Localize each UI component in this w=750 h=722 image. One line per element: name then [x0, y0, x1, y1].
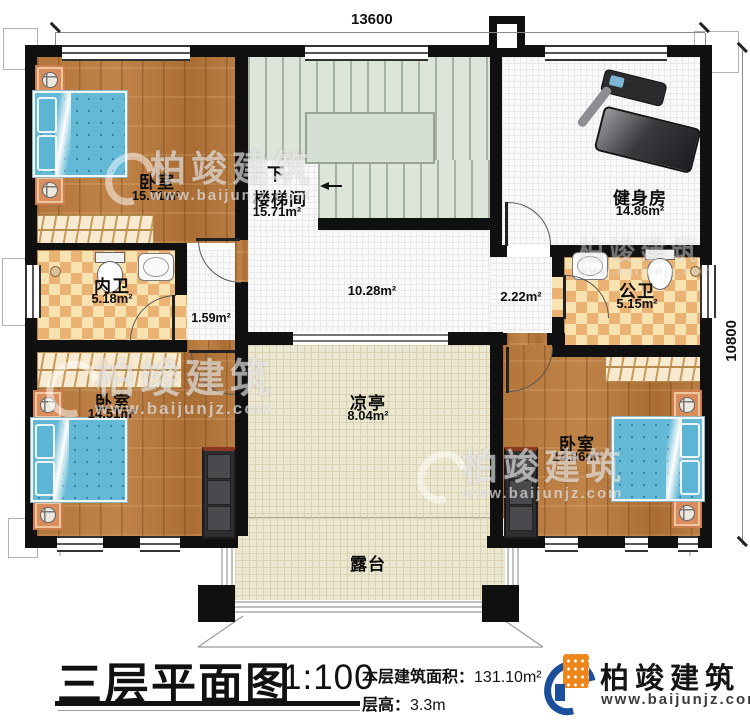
terrace-column-right [482, 585, 519, 622]
dimension-ext-left [55, 33, 56, 45]
sofa-br [504, 447, 538, 539]
sink-basin [143, 257, 169, 277]
nightstand [33, 500, 63, 530]
door-leaf-bedroom-tl [196, 238, 240, 241]
nightstand [35, 175, 65, 205]
floor-area-row: 本层建筑面积：131.10m² [362, 663, 542, 687]
lamp-icon [40, 507, 56, 523]
wall-pavilion-right [490, 345, 503, 536]
title-underline-thick [55, 701, 360, 706]
wall-gym-left [490, 57, 502, 257]
door-gap-bathin [175, 295, 187, 340]
sofa-cushion [207, 454, 231, 479]
lamp-icon [679, 505, 695, 521]
floor-height-value: 3.3m [410, 697, 446, 714]
room-area-bedroom-tl: 15.71m² [132, 188, 180, 203]
window-bottom-bl-2 [140, 536, 180, 552]
sink-basin [577, 256, 603, 276]
sink [138, 253, 174, 281]
door-gap-br [507, 333, 547, 345]
wall-bathin-bottom [25, 340, 187, 352]
wall-stair-bottom [318, 218, 490, 230]
pavilion-floor [248, 345, 490, 518]
bed-br [612, 417, 704, 501]
pillow [35, 461, 55, 496]
brand-logo-icon [545, 652, 595, 710]
wall-bathin-top [25, 243, 187, 250]
door-leaf-bedroom-bl [189, 350, 235, 353]
room-area-bedroom-bl: 14.51m² [88, 406, 136, 421]
room-area-pavilion: 8.04m² [347, 408, 388, 423]
room-area-bath-inner: 5.18m² [91, 291, 132, 306]
bed-tl [33, 91, 127, 177]
window-bottom-br-2 [625, 536, 648, 552]
stair-flight-lower [318, 160, 490, 218]
wall-center-vertical [235, 282, 248, 536]
pillow [680, 460, 700, 495]
pillow [37, 135, 57, 171]
wall-bedroomtl-stair [235, 57, 248, 240]
nightstand [672, 390, 702, 420]
pillow [35, 424, 55, 459]
nightstand [33, 390, 63, 420]
wall-bathin-right [175, 250, 187, 295]
sheet-fold [666, 419, 682, 499]
lamp-icon [679, 397, 695, 413]
wall-bathpub-left-a [552, 257, 564, 277]
stair-direction-label: 下 [267, 160, 285, 185]
lamp-icon [42, 72, 58, 88]
bedroom-tl-wardrobe [37, 215, 154, 245]
dimension-right-line [742, 50, 743, 545]
dimension-right: 10800 [723, 320, 740, 362]
title-underline-thin [58, 710, 360, 711]
door-leaf-bedroom-br [506, 347, 509, 393]
wall-gym-bottom-stub [490, 245, 507, 257]
corridor-right-area: 2.22m² [500, 289, 541, 304]
window-top-bedroomtl [62, 45, 190, 61]
floor-area-value: 131.10m² [474, 669, 542, 686]
wall-pavilion-top-left [235, 332, 293, 345]
wall-pavilion-top-right [448, 332, 503, 345]
corridor-left-area: 1.59m² [191, 311, 231, 325]
room-area-bedroom-br: 14.86m² [553, 449, 601, 464]
floor-plan-canvas: 卧室 15.71m² 下 楼梯间 15.71m² 健身房 14.86m² 内卫 … [0, 0, 750, 722]
sheet-fold [53, 420, 69, 500]
stair-arrow-tail [327, 185, 342, 187]
sofa-cushion [207, 480, 231, 505]
sofa-cushion [207, 506, 231, 531]
shower-head-icon [690, 266, 701, 277]
brand-logo-url: www.baijunjz.com [601, 691, 750, 708]
floor-height-label: 层高： [362, 697, 410, 714]
window-top-gym [545, 45, 667, 61]
shower-head-icon [50, 266, 61, 277]
wall-bedroombr-top-b [547, 333, 565, 345]
room-area-gym: 14.86m² [616, 203, 664, 218]
dimension-top: 13600 [351, 11, 393, 28]
door-leaf-bath-public [563, 275, 566, 319]
door-leaf-bath-inner [172, 295, 175, 340]
sofa-cushion [509, 506, 533, 531]
dimension-ext-right [705, 33, 706, 45]
window-bottom-br-3 [678, 536, 698, 552]
chimney [489, 16, 525, 56]
pavilion-terrace-divider [248, 517, 490, 518]
pavilion-sill-line1 [293, 334, 448, 336]
door-leaf-gym [505, 202, 508, 246]
stair-landing [305, 112, 435, 164]
window-bottom-bl-1 [57, 536, 103, 552]
floor-area-label: 本层建筑面积： [362, 669, 474, 686]
window-right-bathpublic [700, 265, 716, 318]
pavilion-sill-line2 [293, 340, 448, 342]
treadmill-belt [594, 105, 702, 174]
floor-height-row: 层高：3.3m [362, 691, 446, 715]
sofa-bl [202, 447, 236, 539]
window-bottom-br-1 [545, 536, 578, 552]
sofa-cushion [509, 480, 533, 505]
nightstand [672, 498, 702, 528]
lamp-icon [40, 397, 56, 413]
lamp-icon [42, 182, 58, 198]
hall-area: 10.28m² [348, 283, 396, 298]
pillow [37, 97, 57, 133]
bed-bl [31, 418, 127, 502]
room-label-terrace: 露台 [350, 550, 386, 575]
window-left-bathinner [25, 265, 41, 318]
pillow [680, 423, 700, 458]
window-top-stairwell [305, 45, 428, 61]
wall-bathpub-bottom [552, 345, 712, 357]
room-area-stairwell: 15.71m² [253, 204, 301, 219]
bedroom-bl-wardrobe [37, 352, 182, 388]
dimension-top-line [55, 32, 705, 33]
hall-floor [248, 230, 490, 332]
plan-scale: 1:100 [282, 658, 375, 698]
sheet-fold [55, 93, 71, 175]
terrace-column-left [198, 585, 235, 622]
room-area-bath-public: 5.15m² [616, 296, 657, 311]
sofa-cushion [509, 454, 533, 479]
